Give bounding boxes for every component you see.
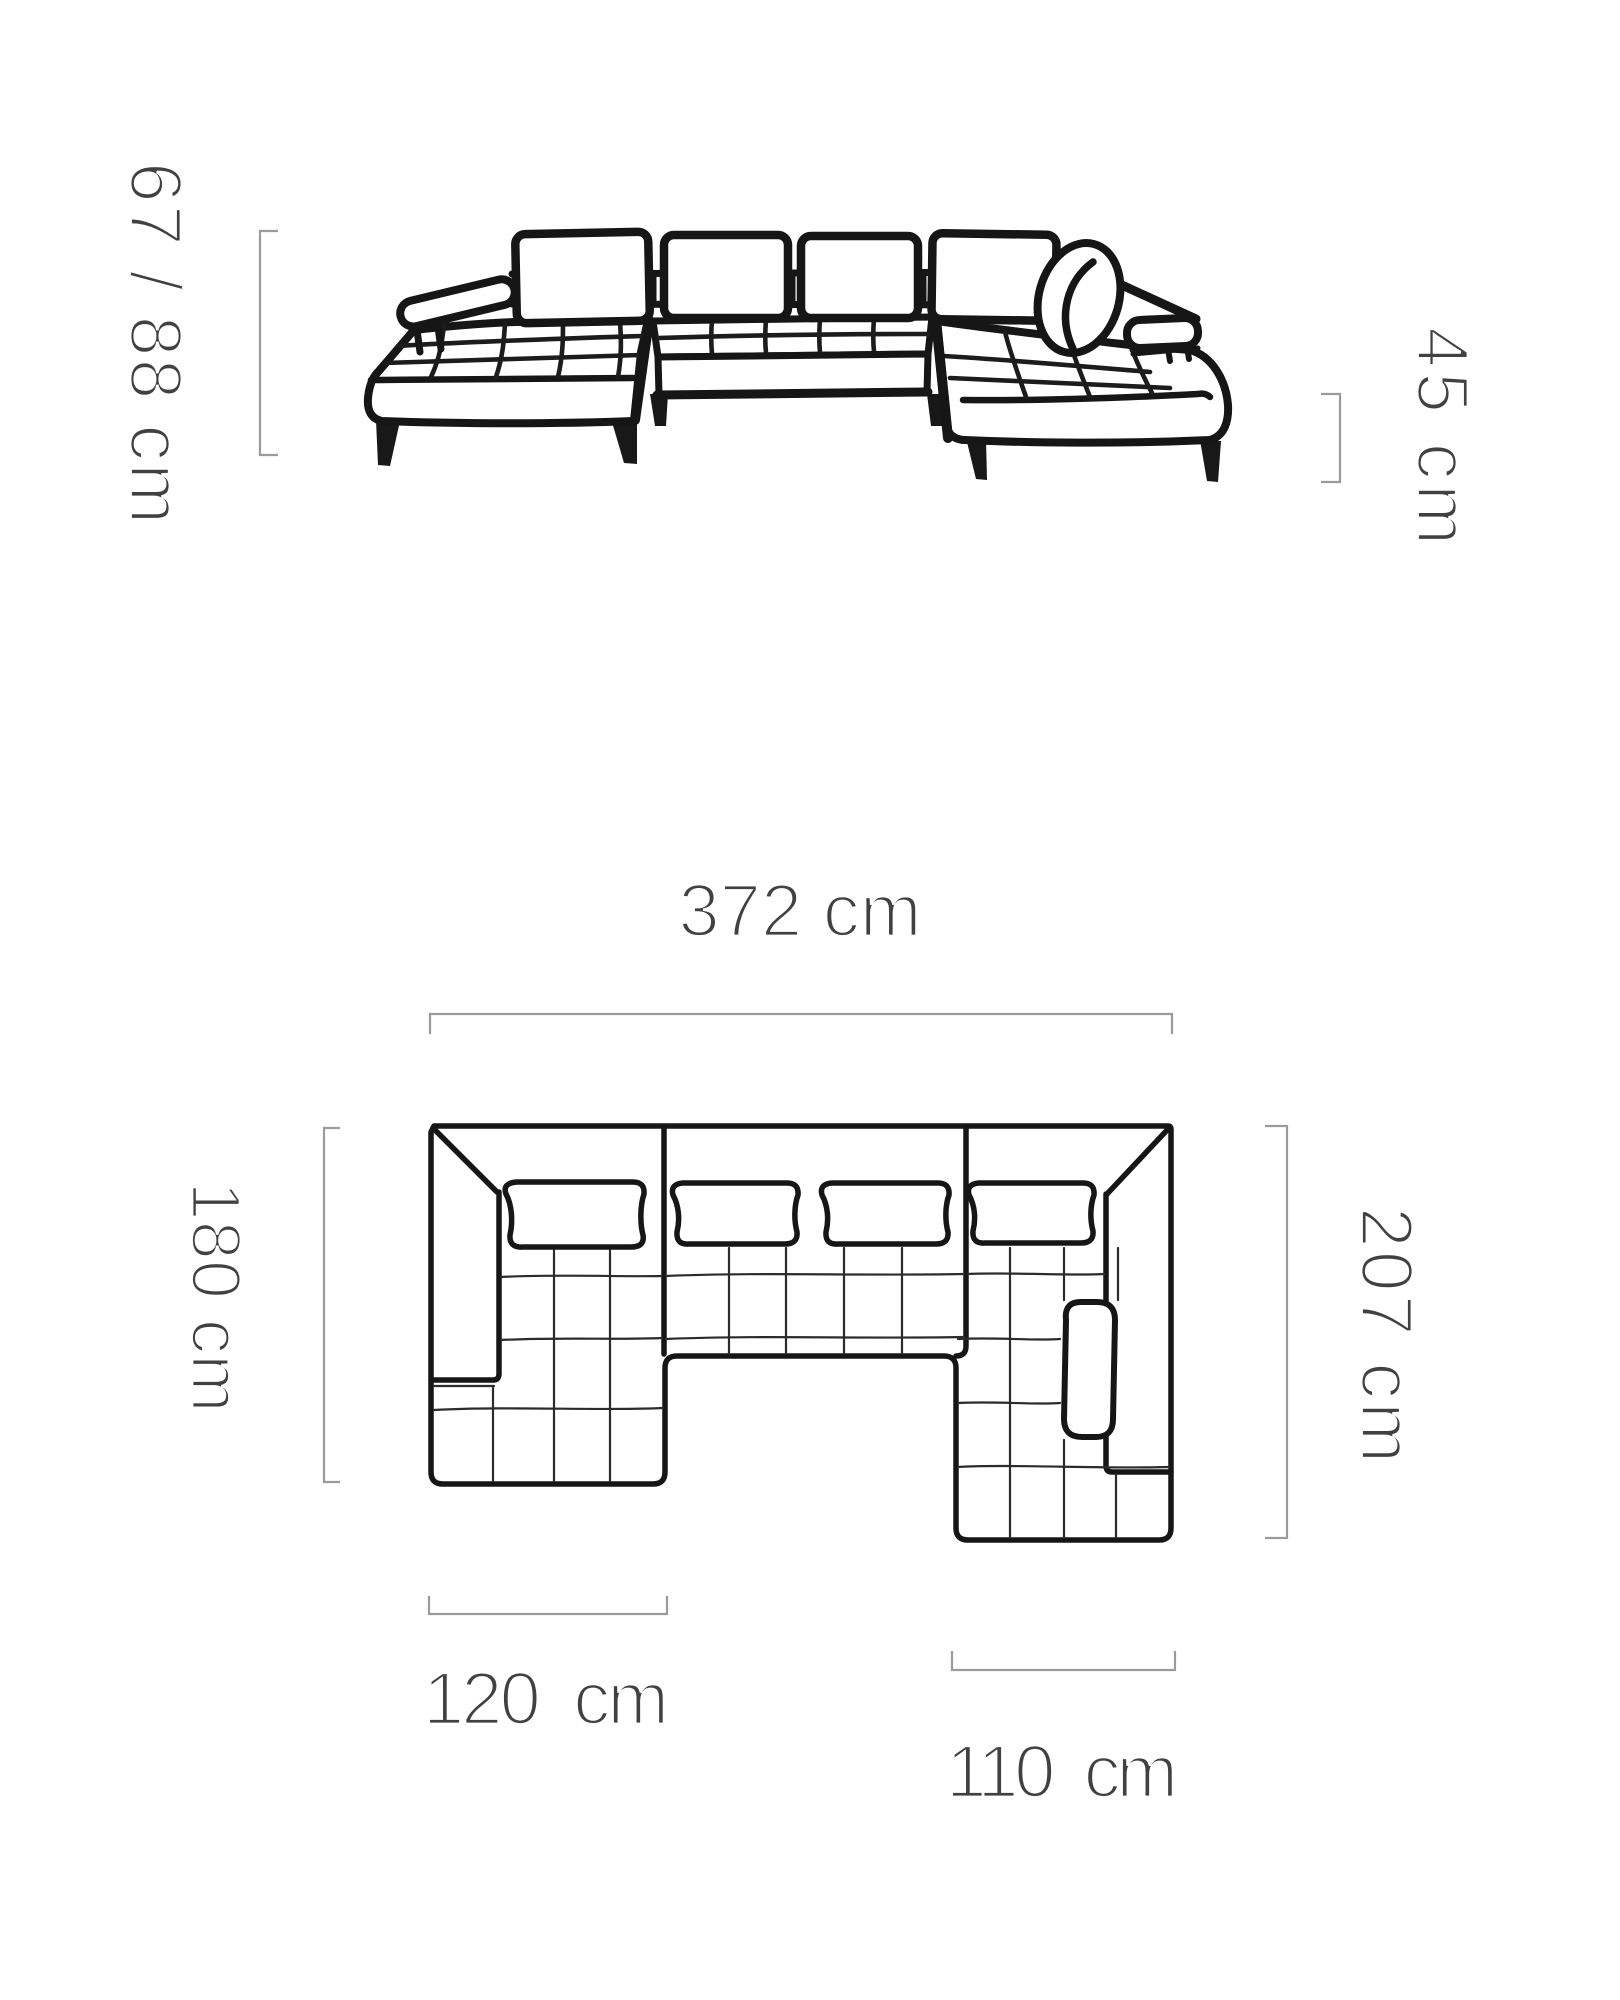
svg-text:110 cm: 110 cm: [946, 1730, 1178, 1813]
svg-text:45 cm: 45 cm: [1402, 327, 1483, 545]
svg-text:207 cm: 207 cm: [1346, 1207, 1427, 1463]
svg-text:180 cm: 180 cm: [177, 1182, 255, 1413]
svg-text:120 cm: 120 cm: [423, 1657, 669, 1740]
svg-text:67 / 88 cm: 67 / 88 cm: [115, 162, 196, 524]
svg-text:372 cm: 372 cm: [679, 869, 922, 952]
